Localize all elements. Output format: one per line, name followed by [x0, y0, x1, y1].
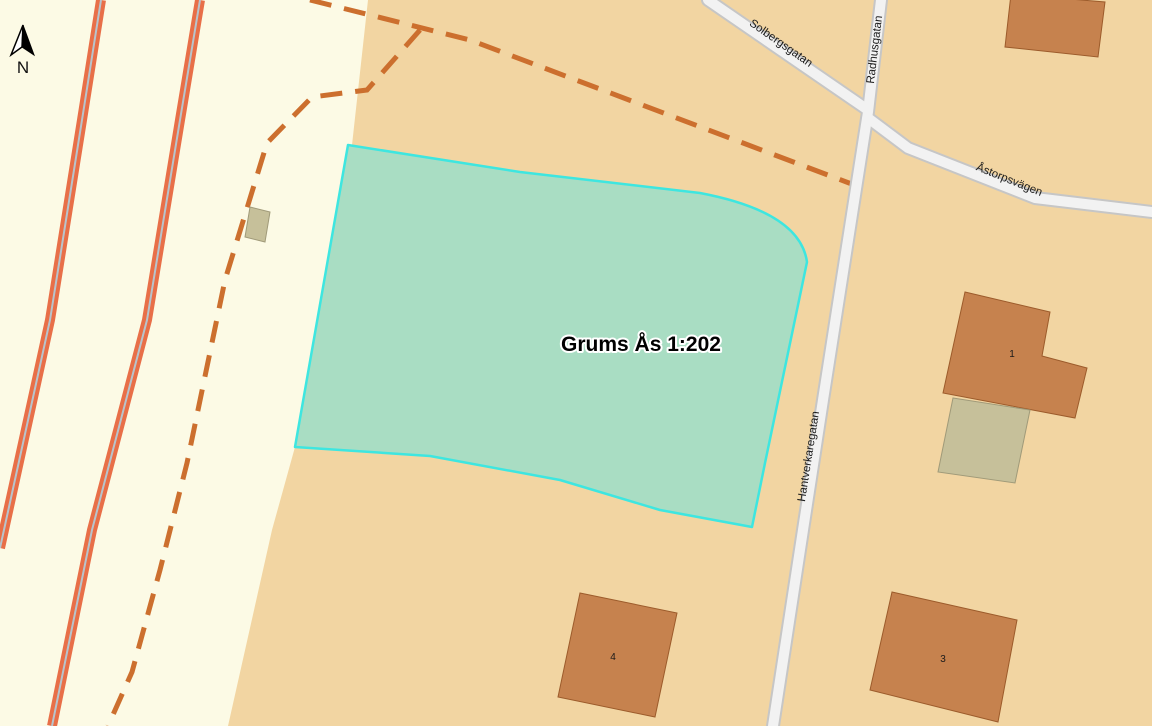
building-4-number: 4: [610, 652, 616, 663]
map-canvas[interactable]: 1 4 3 Solbergsgatan Radhusgatan Åstorpsv…: [0, 0, 1152, 726]
building-3-number: 3: [940, 654, 946, 665]
building-1-number: 1: [1009, 349, 1015, 360]
map-svg: 1 4 3 Solbergsgatan Radhusgatan Åstorpsv…: [0, 0, 1152, 726]
north-arrow-label: N: [17, 58, 29, 77]
building-northeast: [1005, 0, 1105, 57]
building-4: [558, 593, 677, 717]
outbuilding-west: [245, 207, 270, 242]
parcel-label: Grums Ås 1:202: [561, 332, 721, 356]
outbuilding-east: [938, 398, 1030, 483]
